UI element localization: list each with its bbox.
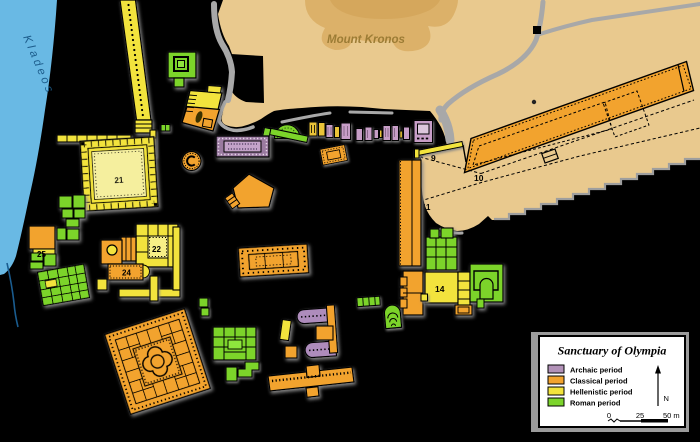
- svg-text:Archaic period: Archaic period: [570, 366, 623, 375]
- svg-text:10: 10: [474, 173, 484, 183]
- svg-text:25: 25: [37, 250, 46, 259]
- svg-text:14: 14: [435, 284, 445, 294]
- svg-text:50 m: 50 m: [663, 411, 680, 420]
- svg-text:21: 21: [114, 176, 124, 186]
- svg-text:22: 22: [152, 245, 161, 254]
- svg-text:N: N: [664, 394, 669, 403]
- svg-text:Mount Kronos: Mount Kronos: [327, 34, 405, 46]
- svg-text:25: 25: [636, 411, 644, 420]
- svg-text:Classical period: Classical period: [570, 377, 628, 386]
- svg-text:Sanctuary of Olympia: Sanctuary of Olympia: [558, 344, 667, 358]
- svg-text:Roman period: Roman period: [570, 399, 621, 408]
- svg-text:9: 9: [431, 153, 436, 163]
- svg-text:11: 11: [422, 203, 431, 212]
- svg-text:Hellenistic period: Hellenistic period: [570, 388, 633, 397]
- svg-text:0: 0: [607, 411, 611, 420]
- svg-text:24: 24: [122, 269, 131, 278]
